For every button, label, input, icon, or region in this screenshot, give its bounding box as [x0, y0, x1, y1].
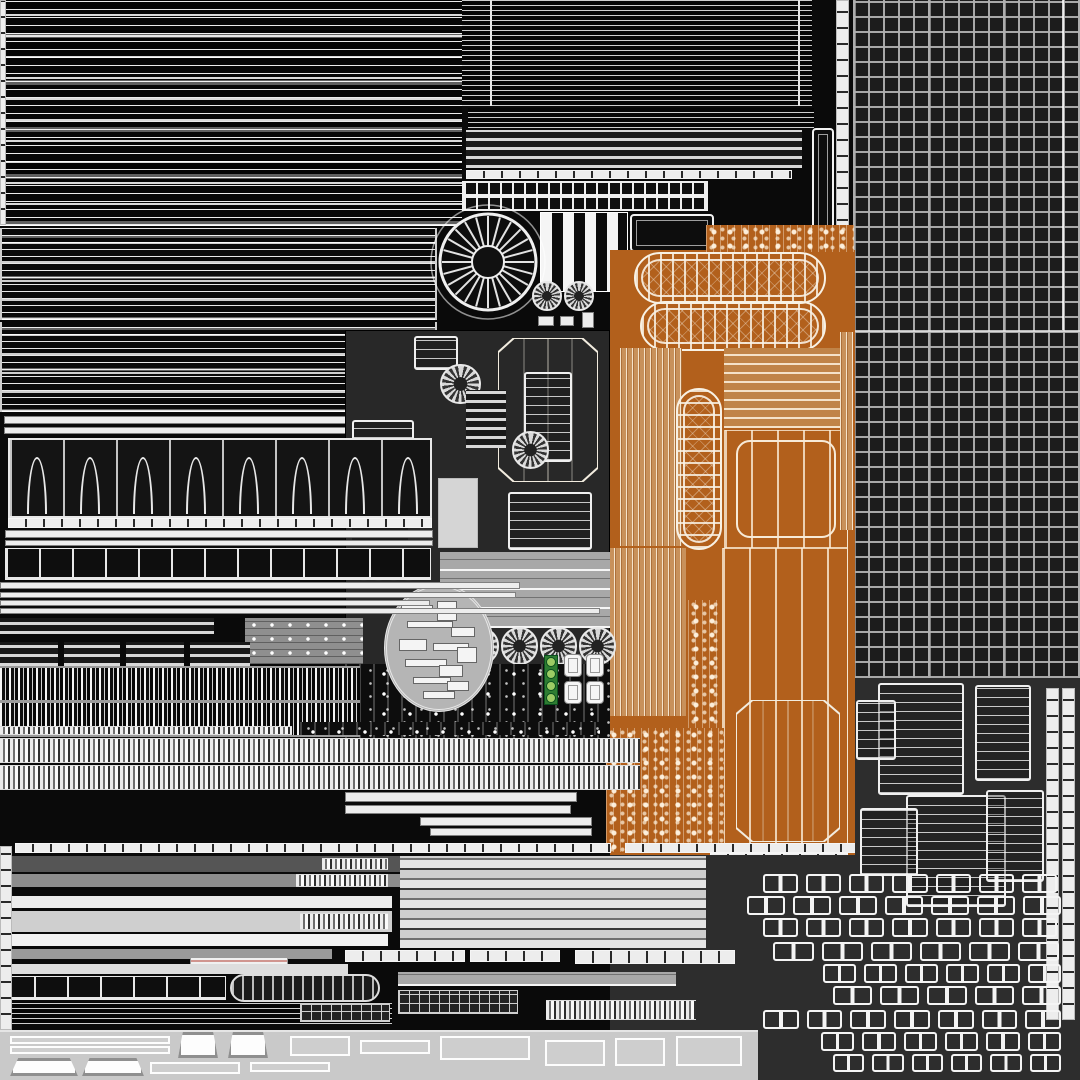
clip-row-1: [760, 876, 1060, 891]
dial-chip-6: [457, 647, 477, 663]
stripe-block-4: [190, 642, 250, 666]
clip-2: [871, 942, 912, 961]
band-white-1: [0, 896, 392, 908]
clip-3: [894, 1010, 930, 1029]
shelf-bar-3: [420, 817, 592, 826]
clip-4: [936, 918, 971, 937]
stripe-block-top-mid: [466, 130, 802, 168]
clip-0: [821, 1032, 854, 1051]
panel-hl-5: [986, 790, 1044, 882]
clip-6: [1023, 896, 1061, 915]
grid-chip-2: [398, 990, 518, 1014]
band-comb-cap-3: [300, 913, 388, 930]
ladder-chip-2: [470, 950, 560, 962]
grid-accent-v: [1062, 0, 1064, 330]
long-bar-1: [0, 582, 520, 589]
clip-1: [806, 918, 841, 937]
clip-row-5: [820, 966, 1064, 981]
clip-4: [938, 1010, 974, 1029]
left-tick-strip: [0, 0, 6, 225]
clip-2: [927, 986, 966, 1005]
clip-1: [822, 942, 863, 961]
comb-band-a: [0, 738, 640, 763]
orange-col-parts: [688, 600, 722, 728]
clip-4: [931, 896, 969, 915]
arch-1: [80, 457, 100, 514]
octagon-outline-icon: [736, 700, 840, 842]
clip-3: [975, 986, 1014, 1005]
shelf-bar-1: [345, 792, 577, 802]
clip-5: [1028, 1032, 1061, 1051]
band-white-3: [0, 964, 348, 974]
shelf-bar-2: [345, 805, 571, 814]
orange-slat-panel-b: [724, 348, 846, 428]
deck-chip-6: [676, 1036, 742, 1066]
thin-ladder-top-mid: [466, 170, 792, 179]
deck-chip-5: [615, 1038, 665, 1066]
clip-0: [833, 986, 872, 1005]
deck-funnel-2: [228, 1032, 268, 1058]
clip-3: [892, 918, 927, 937]
boiler-capsule-a: [634, 252, 826, 304]
gear-0: [532, 281, 562, 311]
boiler-capsule-v: [676, 388, 722, 550]
long-bar-4: [0, 608, 600, 614]
console-chip-2: [466, 390, 506, 448]
barrel: [230, 974, 380, 1002]
clip-2: [849, 918, 884, 937]
deck-bar-4: [250, 1062, 330, 1072]
clip-5: [1018, 942, 1059, 961]
clip-2: [849, 874, 884, 893]
clip-1: [872, 1054, 903, 1072]
led-dot-3: [546, 693, 556, 703]
dial-chip-10: [447, 681, 469, 691]
dial-chip-9: [413, 677, 451, 684]
chip-fan-b: [560, 316, 574, 326]
stripe-block-1: [0, 642, 58, 666]
gray-rail-r: [398, 972, 676, 986]
gray-stack: [400, 856, 706, 948]
orange-slat-panel-c: [608, 548, 686, 716]
deck-funnel-1: [178, 1032, 218, 1058]
clip-0: [763, 1010, 799, 1029]
fine-lines-top-mid: [462, 0, 812, 106]
deck-chip-4: [545, 1040, 605, 1066]
gear-1: [501, 627, 538, 664]
stripes-top-left: [0, 0, 462, 226]
clip-4: [969, 942, 1010, 961]
uv-texture-atlas: [0, 0, 1080, 1080]
clip-0: [747, 896, 785, 915]
deck-bar-2: [10, 1046, 170, 1054]
gear-0: [512, 431, 549, 468]
rail-b: [5, 540, 433, 546]
clip-5: [1028, 964, 1061, 983]
console-chip-6: [508, 492, 592, 550]
comb-thin: [0, 726, 292, 735]
clip-1: [880, 986, 919, 1005]
clip-row-4: [770, 944, 1062, 959]
clip-3: [920, 942, 961, 961]
clip-4: [936, 874, 971, 893]
key-2: [564, 681, 582, 704]
dial-chip-3: [451, 627, 475, 637]
deck-trap-1: [10, 1058, 78, 1076]
clip-5: [977, 896, 1015, 915]
gear-1: [564, 281, 594, 311]
clip-3: [892, 874, 927, 893]
arch-6: [345, 457, 365, 514]
clip-0: [763, 918, 798, 937]
chip-fan-c: [582, 312, 594, 328]
clip-1: [807, 1010, 843, 1029]
clip-2: [850, 1010, 886, 1029]
arch-7: [398, 457, 418, 514]
cell-band: [0, 976, 226, 1000]
clip-1: [862, 1032, 895, 1051]
clip-2: [904, 1032, 937, 1051]
clip-5: [979, 918, 1014, 937]
arch-2: [133, 457, 153, 514]
led-dot-2: [546, 681, 556, 691]
vline-b: [798, 0, 800, 106]
long-bar-3: [0, 600, 430, 606]
grid-chip-1: [300, 1004, 390, 1022]
stripes-mid-left-a: [0, 228, 437, 320]
clip-6: [1025, 1010, 1061, 1029]
clip-2: [839, 896, 877, 915]
deck-trap-2: [82, 1058, 144, 1076]
clip-5: [982, 1010, 1018, 1029]
gear-knob-2: [512, 432, 548, 468]
fan-icon: [428, 202, 548, 322]
gear-duo: [532, 282, 588, 310]
cell-rail: [5, 548, 431, 580]
clip-3: [945, 1032, 978, 1051]
clip-6: [1022, 918, 1057, 937]
clip-4: [1022, 986, 1061, 1005]
left-edge-chips: [0, 846, 12, 1030]
gray-cluster: [245, 618, 363, 664]
clip-2: [912, 1054, 943, 1072]
grid-accent-h: [853, 330, 1080, 332]
clip-4: [986, 1032, 1019, 1051]
clip-5: [1030, 1054, 1061, 1072]
fan-housing: [428, 202, 548, 322]
comb-band-b: [0, 765, 640, 790]
key-0: [564, 654, 582, 677]
clip-4: [987, 964, 1020, 983]
clip-3: [951, 1054, 982, 1072]
tall-outline: [736, 700, 840, 842]
barcode-band-a: [0, 668, 360, 700]
seg-rail-a: [15, 843, 611, 853]
boiler-capsule-b: [640, 301, 826, 351]
arch-3: [186, 457, 206, 514]
deck-chip-1: [290, 1036, 350, 1056]
clip-0: [763, 874, 798, 893]
band-white-2: [0, 934, 388, 946]
clip-3: [885, 896, 923, 915]
vline-a: [490, 0, 492, 106]
console-chip-5: [438, 478, 478, 548]
arch-rail: [8, 438, 432, 518]
shelf-bar-4: [430, 828, 592, 836]
clip-0: [823, 964, 856, 983]
capsule-inner-ring: [647, 308, 819, 344]
clip-row-7: [760, 1012, 1064, 1027]
deck-chip-3: [440, 1036, 530, 1060]
small-ladders: [575, 950, 735, 964]
clip-row-8: [818, 1034, 1064, 1049]
led-dot-0: [546, 657, 556, 667]
rail-a: [5, 530, 433, 538]
key-3: [586, 681, 604, 704]
door-outline: [736, 440, 836, 538]
dial-chip-11: [423, 691, 455, 699]
clip-3: [946, 964, 979, 983]
clip-1: [793, 896, 831, 915]
arch-0: [27, 457, 47, 514]
clip-0: [773, 942, 814, 961]
stripe-block-3: [126, 642, 184, 666]
clip-row-6: [830, 988, 1064, 1003]
orange-parts-strip: [706, 225, 854, 252]
deck-bar-1: [10, 1036, 170, 1044]
led-strip: [544, 655, 558, 705]
arch-5: [292, 457, 312, 514]
panel-hl-4: [860, 808, 918, 876]
panel-hl-2: [975, 685, 1031, 781]
rail-top-mid: [468, 108, 814, 128]
dial-chip-4: [399, 639, 427, 651]
band-comb-cap-1: [322, 858, 388, 870]
comb-chip-r: [546, 1000, 696, 1020]
key-squares: [562, 652, 606, 706]
deck-bar-3: [150, 1062, 240, 1074]
clip-row-9: [830, 1056, 1064, 1070]
clip-4: [990, 1054, 1021, 1072]
band-comb-cap-2: [296, 874, 388, 887]
orange-side-strip: [840, 332, 853, 530]
mesh-grid: [853, 0, 1080, 678]
clip-6: [1022, 874, 1057, 893]
arch-footer-ladder: [8, 518, 432, 528]
tiny-parts-row: [300, 722, 600, 735]
stripe-block-2: [64, 642, 120, 666]
clip-row-2: [744, 898, 1064, 913]
capsule-inner-ring: [641, 259, 819, 297]
stripe-band: [0, 618, 214, 634]
display-panel: [630, 214, 714, 252]
led-dot-1: [546, 669, 556, 679]
key-1: [586, 654, 604, 677]
clip-5: [979, 874, 1014, 893]
clip-1: [806, 874, 841, 893]
orange-slat-panel-a: [620, 348, 682, 546]
arch-4: [239, 457, 259, 514]
ladder-chip-1: [345, 950, 465, 962]
dial-chip-2: [407, 621, 453, 628]
panel-hl-6: [856, 700, 896, 760]
clip-row-3: [760, 920, 1060, 935]
chip-fan-a: [538, 316, 554, 326]
clip-1: [864, 964, 897, 983]
capsule-inner-ring: [683, 395, 715, 543]
long-bar-2: [0, 592, 516, 598]
clip-0: [833, 1054, 864, 1072]
deck-chip-2: [360, 1040, 430, 1054]
clip-2: [905, 964, 938, 983]
dial-chip-8: [439, 665, 463, 677]
